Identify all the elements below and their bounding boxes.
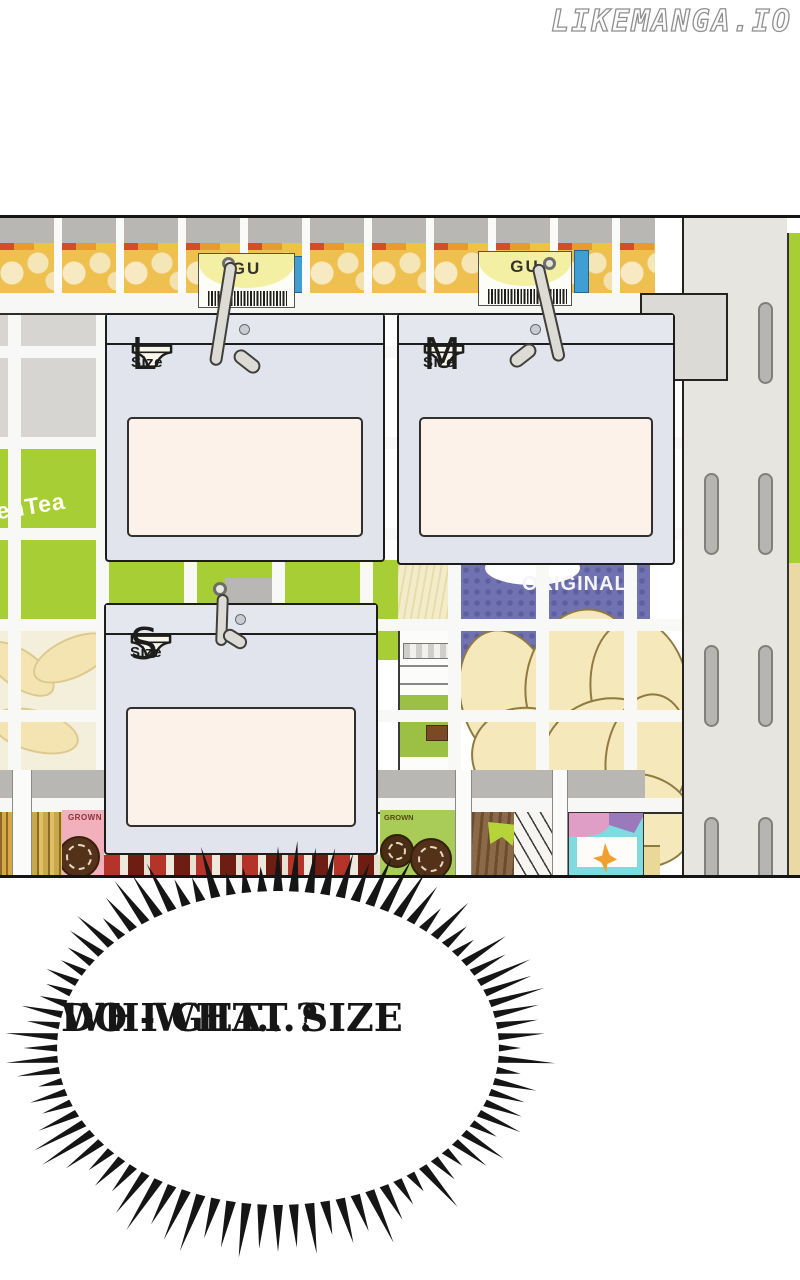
- site-watermark: LIKEMANGA.IO: [551, 4, 792, 39]
- sign-blank-panel: [419, 417, 653, 537]
- green-package-label: GROWN: [384, 813, 414, 822]
- banana-display: [0, 630, 105, 770]
- distant-shelf: [0, 315, 105, 445]
- price-tag-brand: GU: [479, 257, 571, 277]
- size-label: Size: [131, 354, 163, 371]
- sign-hang-hole: [530, 324, 541, 335]
- burst-bubble: [0, 825, 565, 1275]
- price-tag: GU: [478, 251, 572, 306]
- banana-shape: [0, 699, 84, 763]
- candy-package: [568, 812, 644, 878]
- post-slot: [704, 645, 719, 727]
- size-label: Size: [130, 644, 162, 661]
- sign-hang-hole: [239, 324, 250, 335]
- green-tea-packages: enTea: [0, 445, 105, 630]
- shelf-front-bar: [0, 293, 683, 315]
- post-slot: [758, 645, 773, 727]
- sign-blank-panel: [126, 707, 356, 827]
- sign-hang-hole: [235, 614, 246, 625]
- candy-pack-purple: [609, 813, 644, 833]
- edge-tan-package: [787, 563, 800, 875]
- chips-bag-label: ORIGINAL: [522, 573, 628, 596]
- barcode: [488, 289, 567, 304]
- post-slot: [758, 473, 773, 555]
- speech-line-2: DO I GET...?: [61, 988, 318, 1048]
- post-slot: [704, 817, 719, 878]
- price-tag: GU: [198, 253, 295, 308]
- green-tea-label: enTea: [0, 488, 67, 526]
- pink-package-label: GROWN: [68, 813, 102, 822]
- post-slot: [758, 302, 773, 384]
- post-slot: [758, 817, 773, 878]
- store-panel: enTea ORIGINAL: [0, 215, 800, 878]
- size-label: Size: [423, 354, 455, 371]
- candy-pack-pink: [569, 813, 611, 837]
- post-slot: [704, 473, 719, 555]
- edge-green-package: [787, 233, 800, 563]
- price-tag-brand: GU: [199, 259, 294, 279]
- sign-blank-panel: [127, 417, 363, 537]
- manga-page: LIKEMANGA.IO enTea ORIGINAL: [0, 0, 800, 1280]
- shelf-gray-box: [225, 578, 273, 604]
